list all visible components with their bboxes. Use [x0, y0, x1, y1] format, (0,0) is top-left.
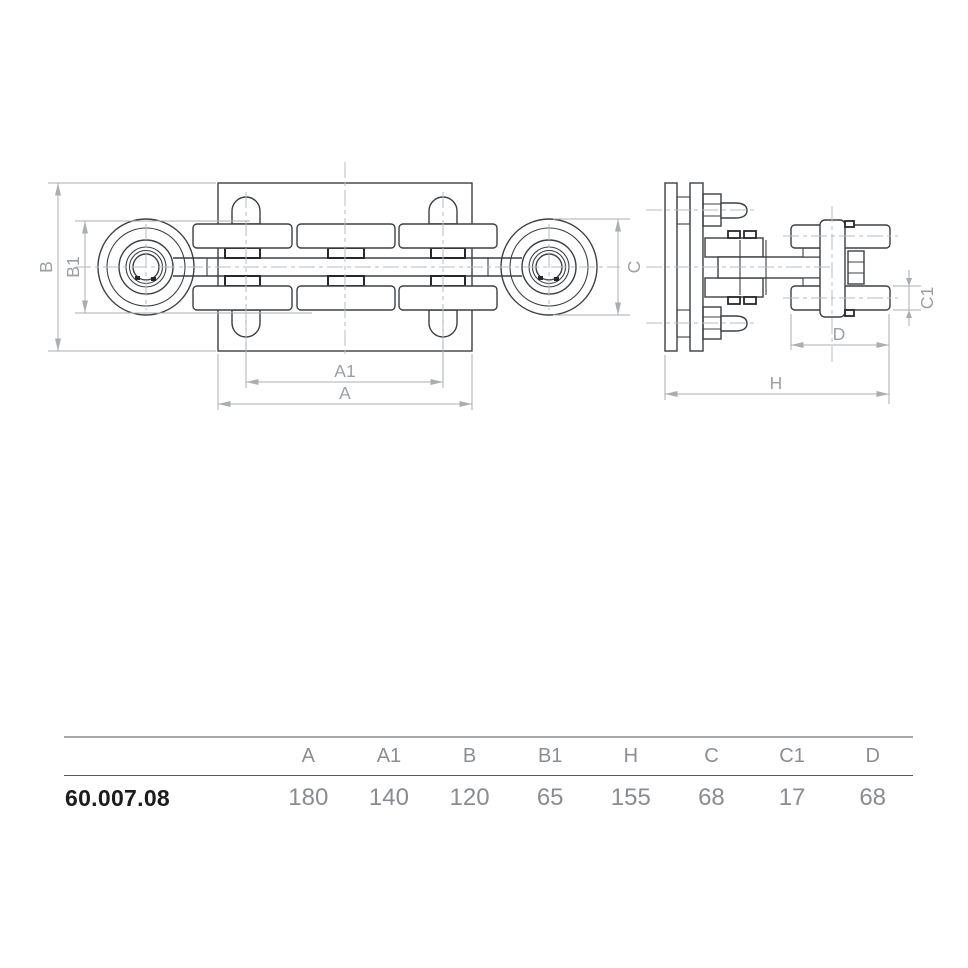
- header-cell-a1: A1: [349, 738, 430, 775]
- header-cell-h: H: [591, 738, 672, 775]
- value-cell-b: 120: [429, 776, 510, 820]
- pivot-plate-top: [705, 238, 763, 257]
- axle-nut: [848, 251, 864, 284]
- side-view: [665, 183, 890, 351]
- header-cell-d: D: [832, 738, 913, 775]
- header-cell-a: A: [268, 738, 349, 775]
- value-cell-a: 180: [268, 776, 349, 820]
- label-c1: C1: [917, 287, 937, 309]
- snap-ring-mark: [135, 276, 140, 280]
- table-header-row: A A1 B B1 H C C1 D: [64, 736, 913, 776]
- value-cell-c: 68: [671, 776, 752, 820]
- value-cell-h: 155: [591, 776, 672, 820]
- arm-step-top: [803, 248, 820, 257]
- value-cell-d: 68: [832, 776, 913, 820]
- spec-table: A A1 B B1 H C C1 D 60.007.08 180 140 120…: [64, 736, 913, 820]
- snap-ring-mark: [538, 276, 543, 280]
- snap-ring-mark: [554, 277, 559, 281]
- label-c: C: [624, 261, 644, 274]
- pivot-plate-bottom: [705, 278, 763, 297]
- label-a: A: [339, 383, 351, 403]
- header-cell-b: B: [429, 738, 510, 775]
- header-cell-c1: C1: [752, 738, 833, 775]
- roller-assembly-drawing: B B1 C C1 A1 A D H: [0, 0, 968, 480]
- header-cell-b1: B1: [510, 738, 591, 775]
- label-d: D: [833, 324, 846, 344]
- value-cell-a1: 140: [349, 776, 430, 820]
- header-cell-part: [64, 738, 268, 775]
- table-value-row: 60.007.08 180 140 120 65 155 68 17 68: [64, 776, 913, 820]
- snap-ring-mark: [151, 277, 156, 281]
- value-cell-b1: 65: [510, 776, 591, 820]
- label-h: H: [770, 373, 783, 393]
- label-b: B: [36, 261, 56, 273]
- value-cell-c1: 17: [752, 776, 833, 820]
- header-cell-c: C: [671, 738, 752, 775]
- part-number-cell: 60.007.08: [64, 776, 268, 820]
- label-a1: A1: [334, 361, 355, 381]
- technical-drawing-page: B B1 C C1 A1 A D H A: [0, 0, 968, 968]
